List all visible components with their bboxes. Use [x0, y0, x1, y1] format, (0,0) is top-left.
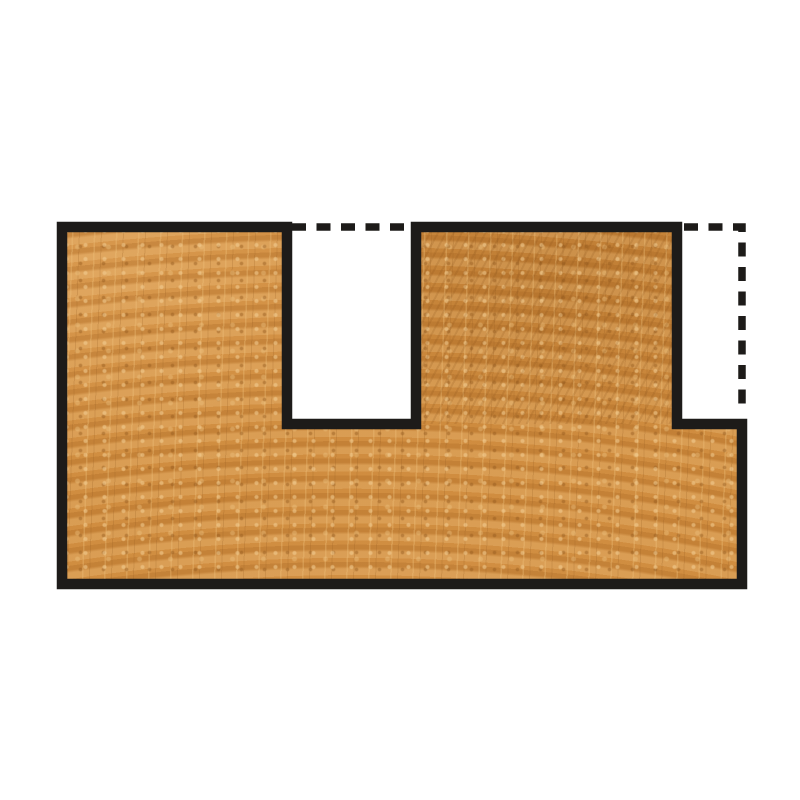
wood-outline [62, 227, 742, 584]
profile-outline-layer [0, 0, 800, 800]
rabbet-cut-dashed-outline [684, 227, 742, 414]
diagram-canvas [0, 0, 800, 800]
